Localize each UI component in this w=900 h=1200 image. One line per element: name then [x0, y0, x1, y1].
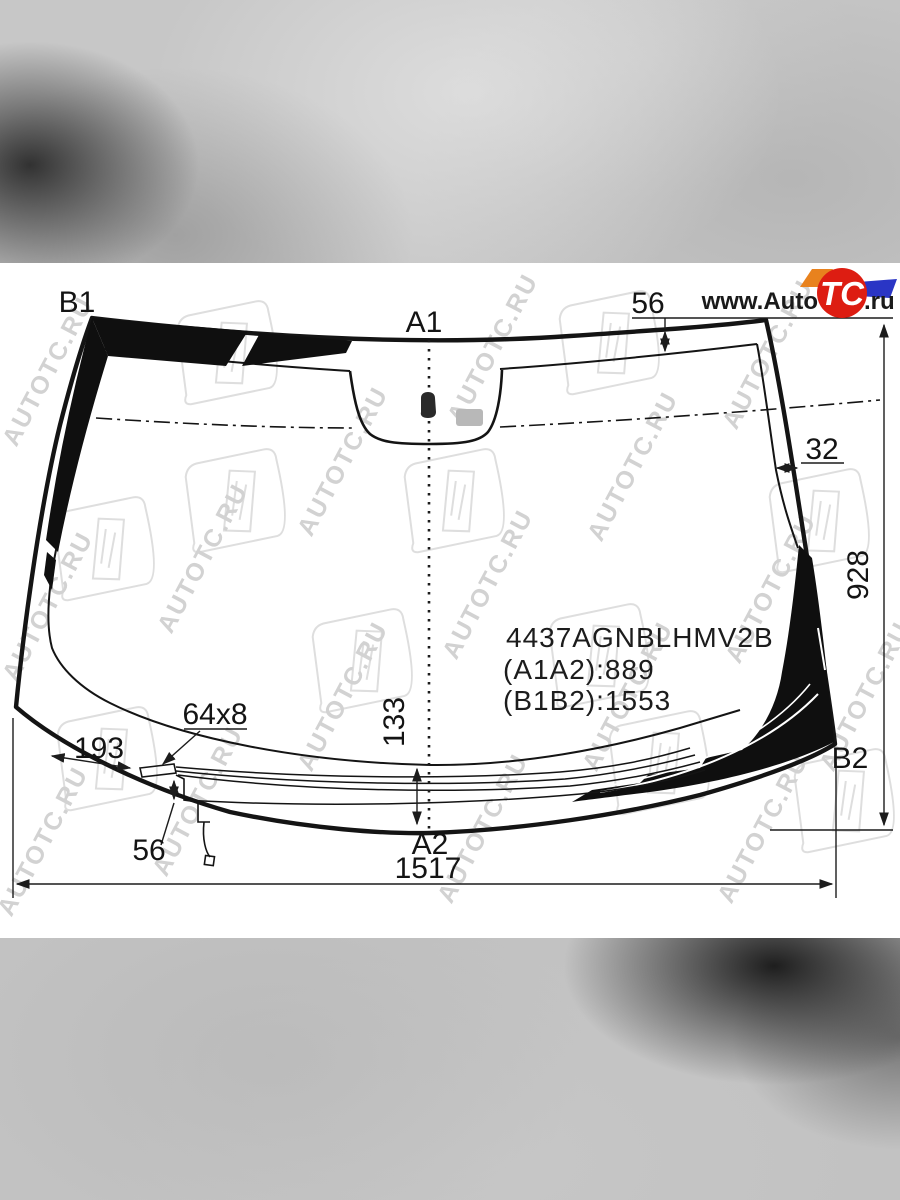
frit-inner-line-top-right	[500, 344, 757, 369]
part-number: 4437AGNBLHMV2B	[506, 622, 774, 653]
dim-right-height: 928	[842, 550, 875, 600]
mirror-mount-button	[421, 392, 436, 418]
diagram-panel: AUTOTC.RU AUTOTC.RU AUTOTC.RU AUTOTC.RU …	[0, 263, 900, 938]
logo-www-text: www.Auto	[701, 288, 818, 315]
frit-top-left-corner	[92, 318, 248, 366]
dim-side-band: 32	[805, 433, 838, 466]
label-b2: B2	[832, 742, 869, 775]
watermark-layer: AUTOTC.RU AUTOTC.RU AUTOTC.RU AUTOTC.RU …	[0, 269, 900, 921]
frit-band-black-areas	[44, 318, 834, 802]
watermark-text: AUTOTC.RU	[442, 269, 544, 428]
watermark-text: AUTOTC.RU	[0, 762, 94, 921]
heater-wires	[176, 748, 705, 804]
windshield-diagram-svg: AUTOTC.RU AUTOTC.RU AUTOTC.RU AUTOTC.RU …	[0, 263, 900, 938]
dim-top-band: 56	[631, 287, 664, 320]
blurred-top-banner	[0, 0, 900, 263]
screenshot-root: AUTOTC.RU AUTOTC.RU AUTOTC.RU AUTOTC.RU …	[0, 0, 900, 1200]
watermark-text: AUTOTC.RU	[582, 387, 684, 546]
rain-sensor-pad	[456, 409, 483, 426]
label-a2: A2	[412, 828, 449, 861]
dim-connector-size: 64x8	[182, 698, 247, 731]
dim-a1a2-text: (A1A2):889	[503, 654, 655, 685]
watermark-text: AUTOTC.RU	[152, 479, 254, 638]
label-a1: A1	[406, 306, 443, 339]
dim-wiper-zone: 133	[378, 697, 411, 747]
autotc-logo: www.Auto TC .ru	[701, 268, 897, 318]
dim-b1b2-text: (B1B2):1553	[503, 685, 671, 716]
watermark-text: AUTOTC.RU	[292, 382, 394, 541]
connector-wire	[203, 822, 210, 857]
dash-dot-trim-line	[96, 400, 880, 428]
dim-connector-drop: 56	[132, 834, 165, 867]
part-number-block: 4437AGNBLHMV2B (A1A2):889 (B1B2):1553	[503, 622, 774, 716]
dim-connector-offset: 193	[74, 732, 124, 765]
blurred-bottom-banner	[0, 938, 900, 1200]
label-b1: B1	[59, 286, 96, 319]
watermark-text: AUTOTC.RU	[292, 617, 394, 776]
logo-tc-text: TC	[820, 275, 865, 312]
logo-ru-text: .ru	[864, 288, 895, 315]
heater-connector	[140, 764, 176, 777]
watermark-text-layer: AUTOTC.RU AUTOTC.RU AUTOTC.RU AUTOTC.RU …	[0, 269, 900, 921]
